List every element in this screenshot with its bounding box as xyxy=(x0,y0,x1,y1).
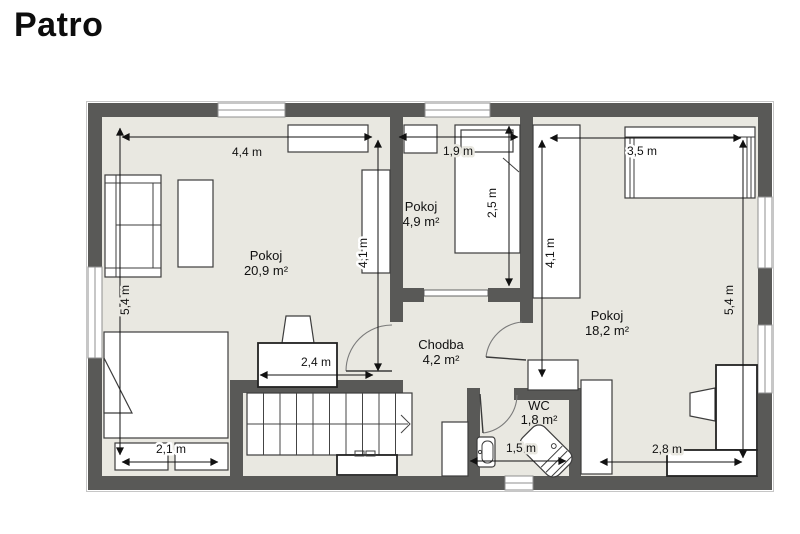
desk-chair-right-icon xyxy=(690,388,715,421)
outer-wall-bottom xyxy=(88,476,772,490)
cabinet-hallway xyxy=(442,422,468,476)
dim-label-middle-room-height: 2,5 m xyxy=(485,188,499,218)
dim-label-desk-width: 2,4 m xyxy=(301,355,331,369)
window-right-upper xyxy=(758,197,772,268)
shelf-right-room xyxy=(528,360,578,390)
dim-label-right-bed-width: 3,5 m xyxy=(627,144,657,158)
desk-chair-icon xyxy=(282,316,314,343)
wall-stairwell-west xyxy=(230,380,243,476)
room-label-middle-name: Pokoj xyxy=(405,199,438,214)
cabinet-under-stairs xyxy=(337,451,397,475)
room-label-right-area: 18,2 m² xyxy=(585,323,630,338)
room-label-hallway-name: Chodba xyxy=(418,337,464,352)
window-top-left xyxy=(218,103,285,117)
shelf-top-wall xyxy=(288,125,368,152)
dim-label-bed-width: 2,1 m xyxy=(156,442,186,456)
floor-plan-page: Patro xyxy=(0,0,800,534)
outer-wall-right xyxy=(758,103,772,490)
stairs xyxy=(247,393,412,455)
dim-label-wc-width: 1,5 m xyxy=(506,441,536,455)
room-label-middle-area: 4,9 m² xyxy=(403,214,441,229)
cabinet-beside-wc xyxy=(581,380,612,474)
dim-label-left-room-width: 4,4 m xyxy=(232,145,262,159)
room-label-wc-area: 1,8 m² xyxy=(521,412,559,427)
window-left xyxy=(88,267,102,358)
window-bottom-wc xyxy=(505,476,533,490)
dim-label-left-room-inner-height: 4,1 m xyxy=(356,238,370,268)
side-table xyxy=(178,180,213,267)
wall-middle-room-south-left xyxy=(403,288,424,302)
cabinet-middle-room xyxy=(404,125,437,153)
room-label-left-name: Pokoj xyxy=(250,248,283,263)
room-label-hallway-area: 4,2 m² xyxy=(423,352,461,367)
dim-label-middle-room-width: 1,9 m xyxy=(443,144,473,158)
sofa xyxy=(105,175,161,277)
wall-middle-room-south-right xyxy=(488,288,533,302)
window-top-middle xyxy=(425,103,490,117)
railing-opening xyxy=(424,290,488,296)
toilet xyxy=(477,437,495,467)
floor-plan-canvas: 4,4 m 5,4 m 4,1 m 2,4 m 2,1 m 1,9 m 2,5 … xyxy=(0,0,800,534)
dim-label-left-room-height: 5,4 m xyxy=(118,285,132,315)
dim-label-right-room-inner-height: 4,1 m xyxy=(543,238,557,268)
window-right-lower xyxy=(758,325,772,393)
wardrobe-right-room xyxy=(533,125,580,298)
dim-label-right-desk-width: 2,8 m xyxy=(652,442,682,456)
room-label-wc-name: WC xyxy=(528,398,550,413)
wall-left-room-east xyxy=(390,117,403,322)
room-label-right-name: Pokoj xyxy=(591,308,624,323)
room-label-left-area: 20,9 m² xyxy=(244,263,289,278)
dim-label-right-room-height: 5,4 m xyxy=(722,285,736,315)
